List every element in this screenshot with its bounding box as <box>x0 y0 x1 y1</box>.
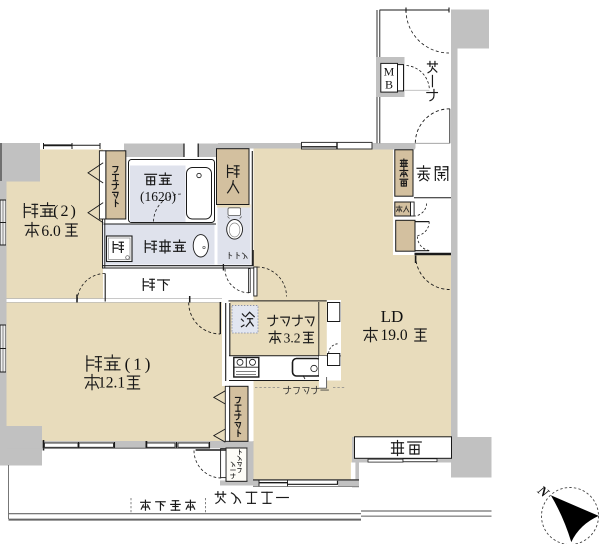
svg-text:(1620): (1620) <box>140 189 176 204</box>
svg-text:LD: LD <box>381 307 404 326</box>
svg-text:(2): (2) <box>53 203 78 220</box>
svg-text:M: M <box>384 65 395 79</box>
svg-text:3.2: 3.2 <box>284 331 301 346</box>
svg-text:B: B <box>385 78 393 92</box>
svg-text:12.1: 12.1 <box>98 375 125 392</box>
svg-text:(1): (1) <box>125 355 154 374</box>
svg-text:6.0: 6.0 <box>41 223 61 240</box>
svg-text:19.0: 19.0 <box>380 327 407 344</box>
